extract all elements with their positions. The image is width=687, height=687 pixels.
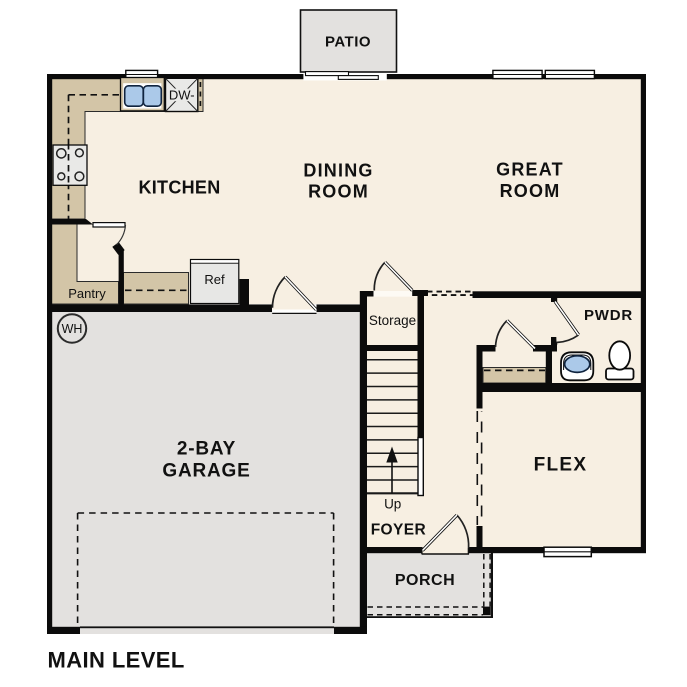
svg-text:WH: WH xyxy=(62,322,83,336)
svg-text:PWDR: PWDR xyxy=(584,307,633,324)
svg-text:2-BAY: 2-BAY xyxy=(177,438,236,459)
svg-text:GARAGE: GARAGE xyxy=(162,460,250,481)
svg-text:DINING: DINING xyxy=(303,160,373,180)
svg-text:Ref: Ref xyxy=(204,272,225,287)
svg-text:KITCHEN: KITCHEN xyxy=(138,178,220,198)
svg-text:FOYER: FOYER xyxy=(371,521,426,538)
svg-text:ROOM: ROOM xyxy=(308,181,369,201)
svg-text:Up: Up xyxy=(384,496,401,511)
svg-text:MAIN LEVEL: MAIN LEVEL xyxy=(48,648,185,673)
svg-text:DW-: DW- xyxy=(169,88,195,103)
svg-text:ROOM: ROOM xyxy=(500,181,561,201)
svg-text:PORCH: PORCH xyxy=(395,572,455,589)
svg-text:PATIO: PATIO xyxy=(325,34,371,51)
svg-text:GREAT: GREAT xyxy=(496,159,564,179)
svg-text:Pantry: Pantry xyxy=(68,286,106,301)
svg-text:FLEX: FLEX xyxy=(534,455,588,476)
svg-text:Storage: Storage xyxy=(369,313,416,328)
